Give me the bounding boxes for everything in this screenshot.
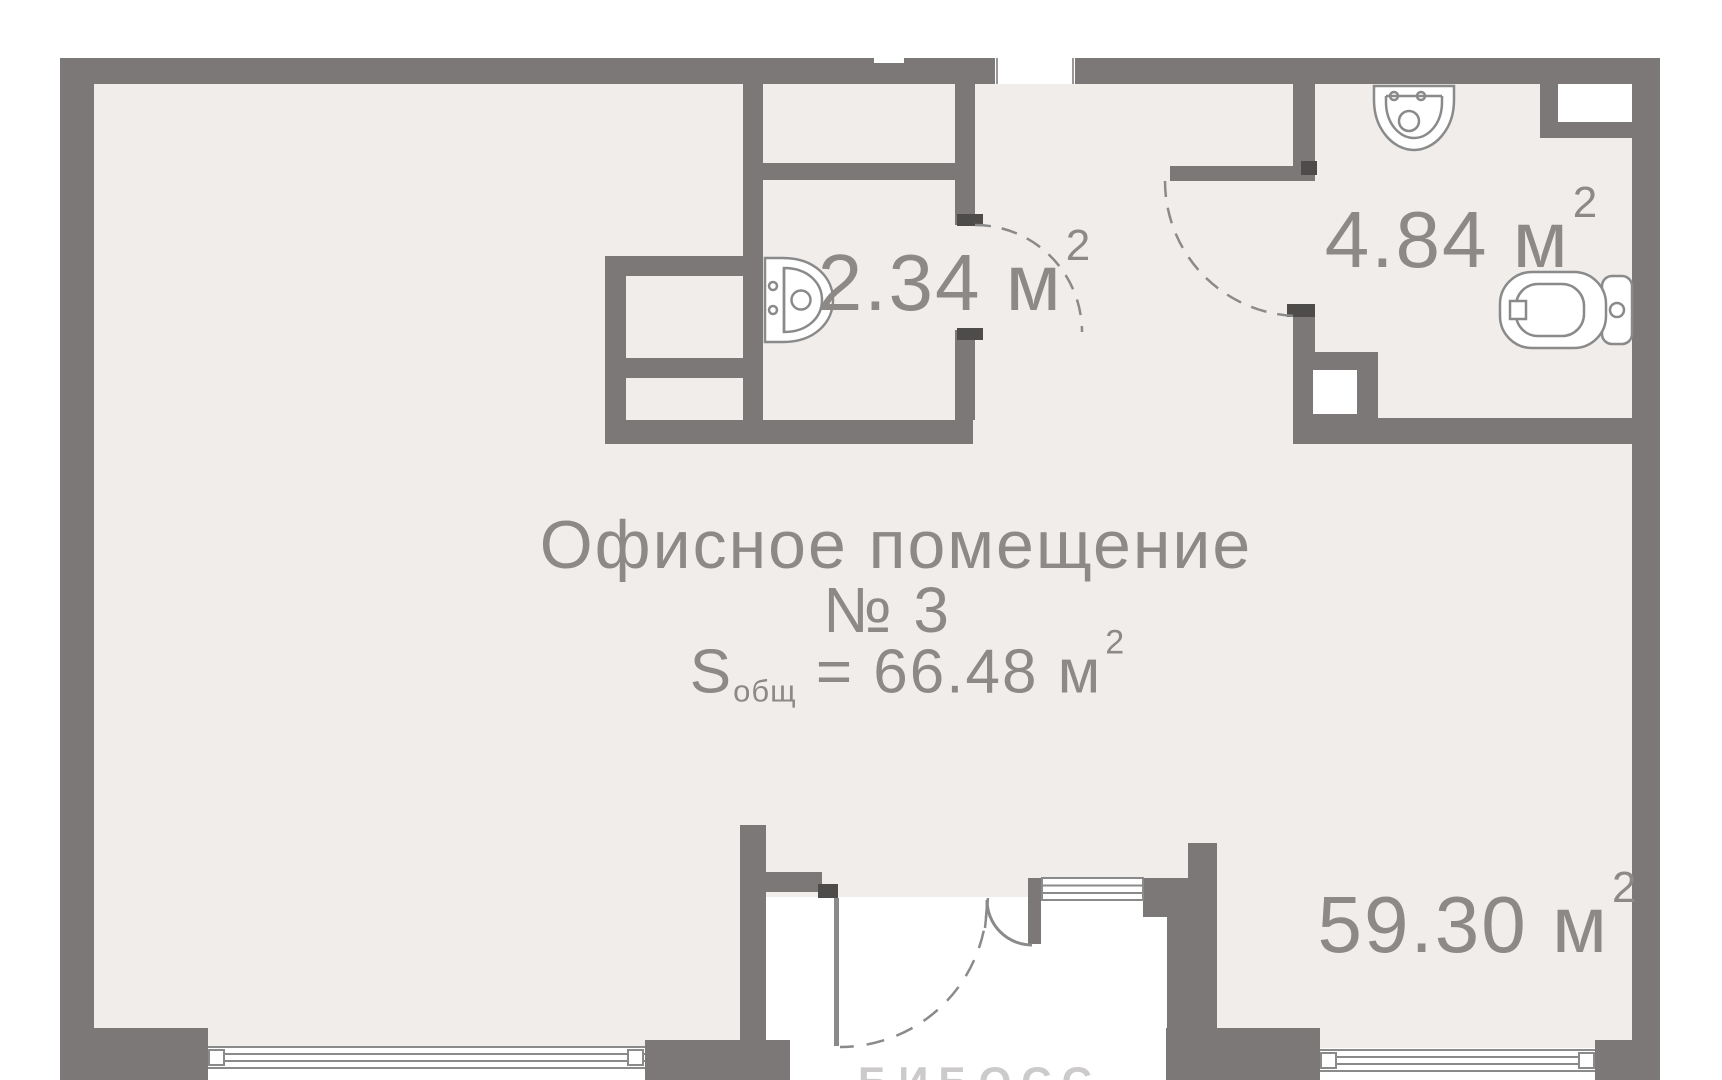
watermark: БИБОСС [858,1058,1102,1080]
floor-plan: Офисное помещение № 3 Sобщ = 66.48 м2 2.… [0,0,1722,1080]
door-leaf-arc [987,900,1032,945]
window-glazing-left [208,1047,645,1068]
room-area-main-space: 59.30 м2 [1318,879,1639,971]
window-top-frame [997,58,1073,84]
window-glazing-right [1320,1050,1595,1071]
total-area-label: Sобщ = 66.48 м2 [690,637,1127,708]
room-area-large-bathroom: 4.84 м2 [1325,194,1599,286]
door-swing-arc [840,900,987,1047]
window-transom [1042,878,1143,900]
area-subscript: общ [733,673,797,708]
sink-icon [1374,86,1454,150]
room-area-small-bathroom: 2.34 м2 [818,237,1092,329]
area-superscript: 2 [1105,624,1126,662]
area-symbol: S [690,638,733,707]
area-value: = 66.48 м [816,638,1102,707]
door-swing-arc [1165,181,1300,316]
